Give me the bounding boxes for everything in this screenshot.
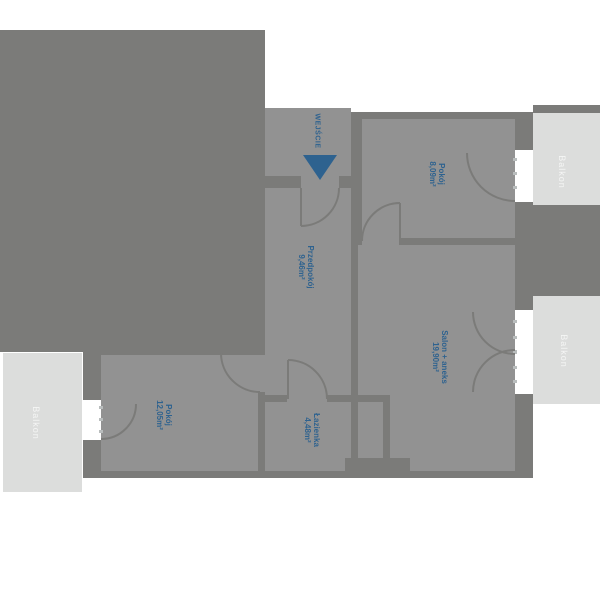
room-label-pokoj-1: Pokój 8,09m² (428, 161, 446, 186)
room-label-pokoj-2: Pokój 12,05m² (155, 400, 173, 430)
entrance-arrow-icon (303, 155, 337, 180)
wall-shaft-mass (345, 458, 410, 471)
wall-bottom-room-top (83, 345, 265, 355)
room-name: Pokój (164, 400, 173, 430)
wall-hall-room-divider (351, 112, 362, 245)
window-bottom-left (82, 400, 101, 440)
room-area: 19,90m² (431, 330, 440, 384)
room-area: 9,46m² (297, 245, 306, 288)
wall-entrance-left (265, 176, 301, 188)
room-name: Pokój (437, 161, 446, 186)
neighbor-balcony-mass (533, 205, 600, 296)
french-door-salon (515, 310, 533, 394)
wall-bath-divider-right (327, 395, 390, 402)
balcony-bottom-left (3, 353, 82, 492)
wall-room-salon-divider-right (400, 238, 515, 245)
wall-band-balcony-top (533, 105, 600, 113)
entrance-label: WEJŚCIE (314, 113, 321, 148)
wall-shaft-right (383, 402, 390, 460)
bottom-room-door-opening (258, 355, 265, 392)
balcony-label-bottom-left: Balkon (31, 406, 41, 440)
room-name: Przedpokój (306, 245, 315, 288)
room-label-przedpokoj: Przedpokój 9,46m² (297, 245, 315, 288)
room-area: 4,48m² (303, 413, 312, 447)
room-name: Łazienka (312, 413, 321, 447)
room-name: Salon + aneks (440, 330, 449, 384)
window-top-right (515, 150, 533, 202)
wall-bath-divider-left (265, 395, 287, 402)
bottom-room-floor (101, 355, 258, 471)
room-area: 8,09m² (428, 161, 437, 186)
neighbor-block (0, 30, 265, 352)
room-area: 12,05m² (155, 400, 164, 430)
balcony-label-top-right: Balkon (557, 155, 567, 189)
wall-entrance-right (339, 176, 351, 188)
balcony-label-mid-right: Balkon (559, 334, 569, 368)
room-label-salon: Salon + aneks 19,90m² (431, 330, 449, 384)
floor-plan: WEJŚCIE Pokój 8,09m² Salon + aneks 19,90… (0, 0, 600, 600)
wall-bottom (83, 471, 533, 478)
wall-room-salon-divider-left (351, 238, 362, 245)
wall-salon-left (351, 245, 358, 402)
hallway-floor (265, 176, 351, 402)
room-label-lazienka: Łazienka 4,48m² (303, 413, 321, 447)
wall-top (351, 112, 533, 119)
